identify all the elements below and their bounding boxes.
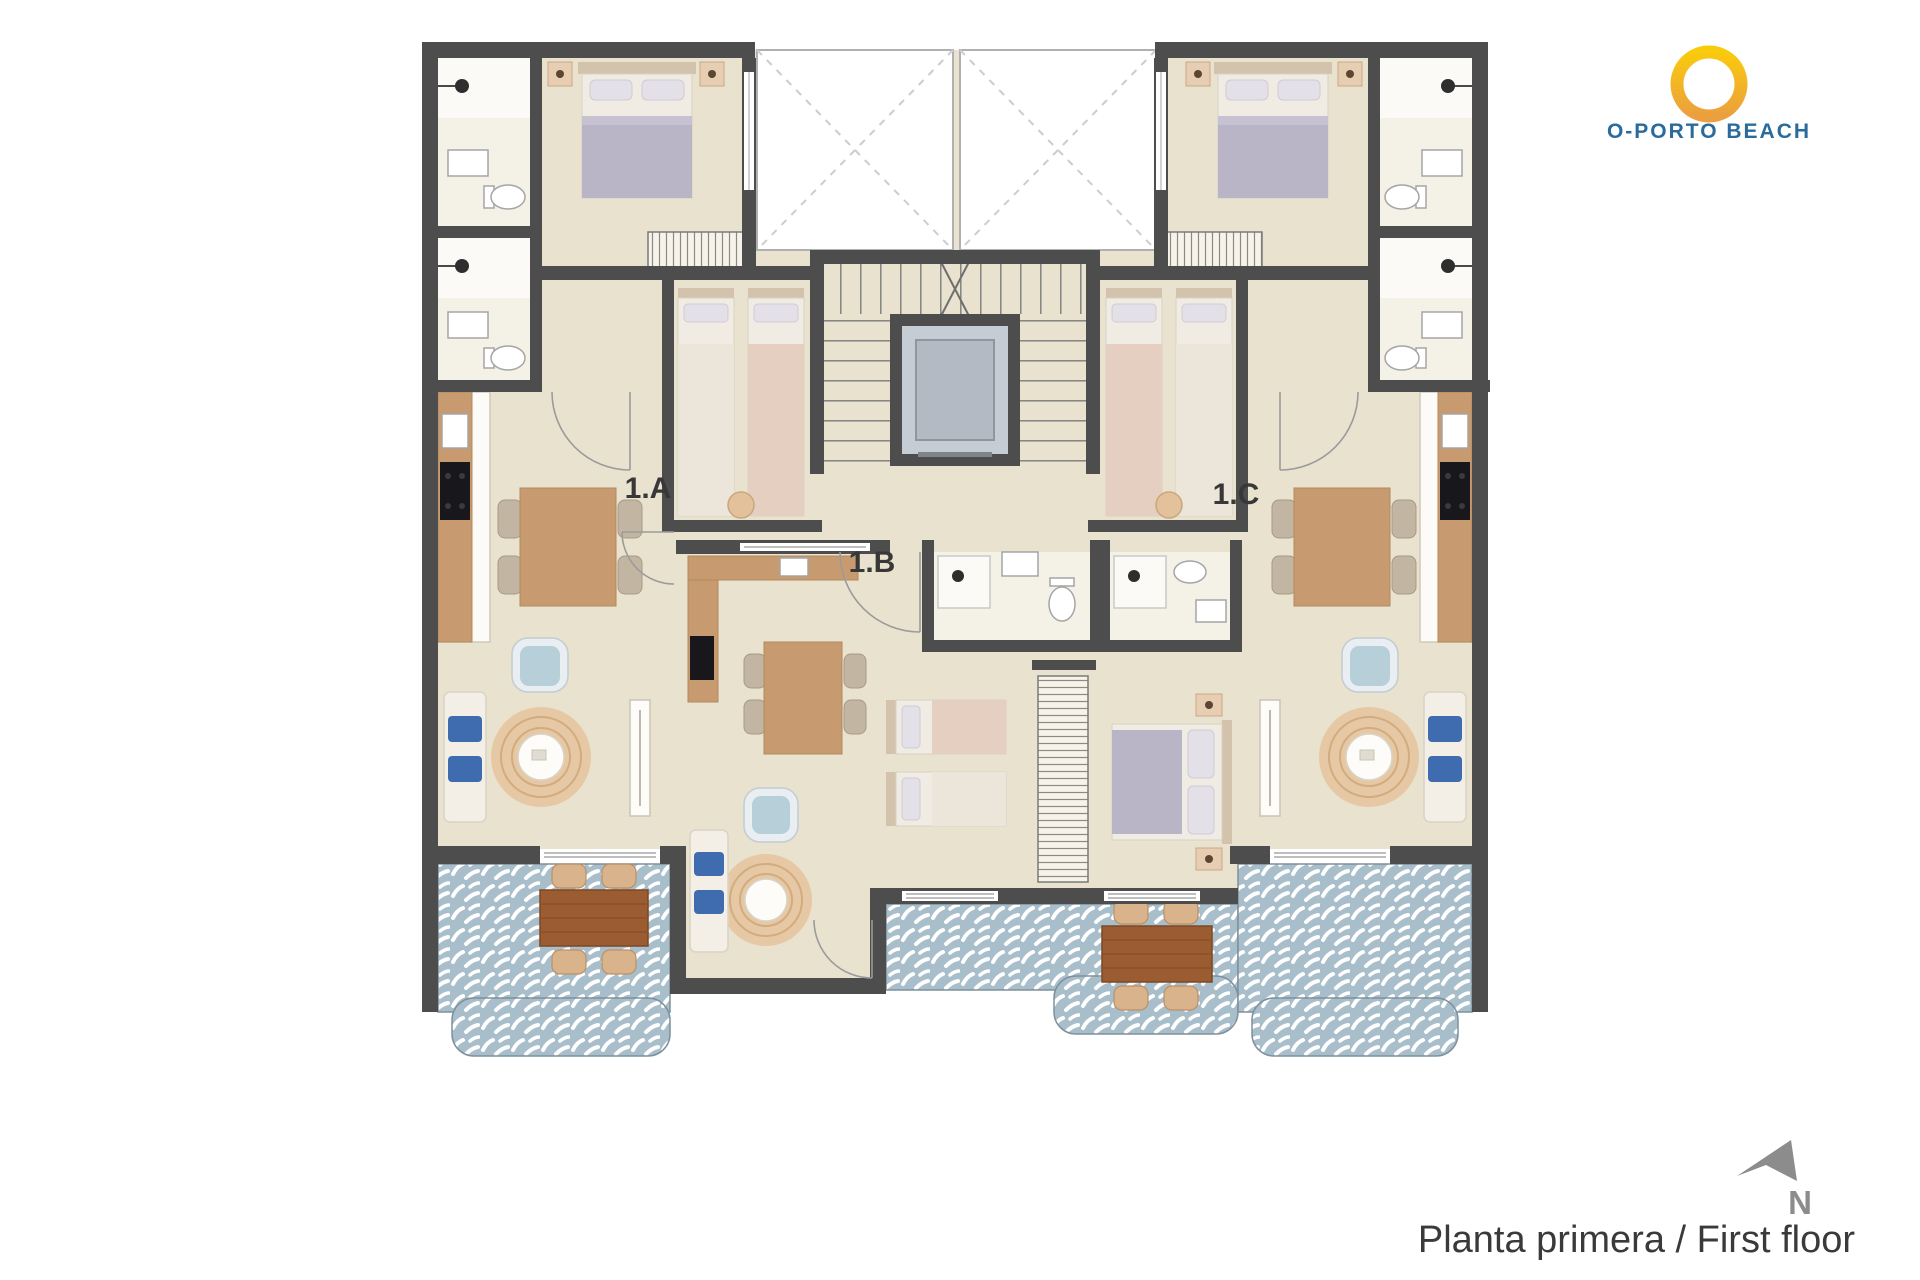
armchair xyxy=(1342,638,1398,692)
kitchen-sink xyxy=(442,414,468,448)
apartment-label-1b: 1.B xyxy=(849,546,896,579)
toilet xyxy=(491,185,525,209)
rug-and-coffee-table xyxy=(491,707,591,807)
kitchen-sink xyxy=(780,558,808,576)
floor-plan-page: 1.A 1.B 1.C O-PORTO BEACH N Planta prime… xyxy=(0,0,1920,1280)
sink xyxy=(448,150,488,176)
apartment-label-1a: 1.A xyxy=(625,472,672,505)
wardrobe xyxy=(1166,232,1262,268)
armchair xyxy=(512,638,568,692)
terrace-left-bump xyxy=(452,998,670,1056)
sink xyxy=(1422,312,1462,338)
shower-head-icon xyxy=(1128,570,1140,582)
sink xyxy=(1422,150,1462,176)
pouf xyxy=(1156,492,1182,518)
sofa xyxy=(690,830,728,952)
stair-left-run xyxy=(824,314,890,474)
sink xyxy=(1002,552,1038,576)
armchair xyxy=(744,788,798,842)
sofa xyxy=(1424,692,1466,822)
sideboard xyxy=(1260,700,1280,816)
north-arrow: N xyxy=(1737,1140,1812,1221)
logo-title: O-PORTO BEACH xyxy=(1607,120,1811,143)
north-arrow-icon xyxy=(1737,1140,1797,1181)
shower-head-icon xyxy=(952,570,964,582)
wardrobe xyxy=(1038,676,1088,882)
apartment-label-1c: 1.C xyxy=(1213,478,1260,511)
dining-table xyxy=(1294,488,1390,606)
north-label: N xyxy=(1788,1184,1812,1221)
toilet-tank xyxy=(1050,578,1074,586)
plan-caption: Planta primera / First floor xyxy=(1418,1219,1855,1261)
dining-table xyxy=(764,642,842,754)
stair-right-run xyxy=(1020,314,1086,474)
shower-head-icon xyxy=(1441,259,1455,273)
terrace-right xyxy=(1238,864,1472,1012)
rug-and-coffee-table xyxy=(720,854,812,946)
sink xyxy=(448,312,488,338)
window xyxy=(1156,72,1166,190)
stair-core xyxy=(824,260,1086,474)
kitchen xyxy=(438,392,490,642)
toilet xyxy=(1385,346,1419,370)
coffee-table xyxy=(745,879,787,921)
sliding-door xyxy=(1104,891,1200,901)
cooktop xyxy=(690,636,714,680)
shower-head-icon xyxy=(1441,79,1455,93)
cooktop xyxy=(1440,462,1470,520)
wardrobe xyxy=(648,232,744,268)
sliding-door xyxy=(902,891,998,901)
dining-table xyxy=(520,488,616,606)
light-well-left xyxy=(757,50,953,250)
elevator xyxy=(890,314,1020,466)
toilet xyxy=(491,346,525,370)
toilet xyxy=(1049,587,1075,621)
sliding-door xyxy=(540,849,660,861)
kitchen-sink xyxy=(1442,414,1468,448)
logo-ring-icon xyxy=(1677,52,1741,116)
sofa xyxy=(444,692,486,822)
toilet xyxy=(1385,185,1419,209)
terrace-right-bump xyxy=(1252,998,1458,1056)
kitchen xyxy=(1420,392,1472,642)
sink xyxy=(1196,600,1226,622)
pouf xyxy=(728,492,754,518)
shower-head-icon xyxy=(455,259,469,273)
shower-head-icon xyxy=(455,79,469,93)
sideboard xyxy=(630,700,650,816)
rug-and-coffee-table xyxy=(1319,707,1419,807)
toilet xyxy=(1174,561,1206,583)
light-well-right xyxy=(960,50,1156,250)
logo: O-PORTO BEACH xyxy=(1607,52,1811,143)
sliding-door xyxy=(1270,849,1390,861)
window xyxy=(744,72,754,190)
cooktop xyxy=(440,462,470,520)
